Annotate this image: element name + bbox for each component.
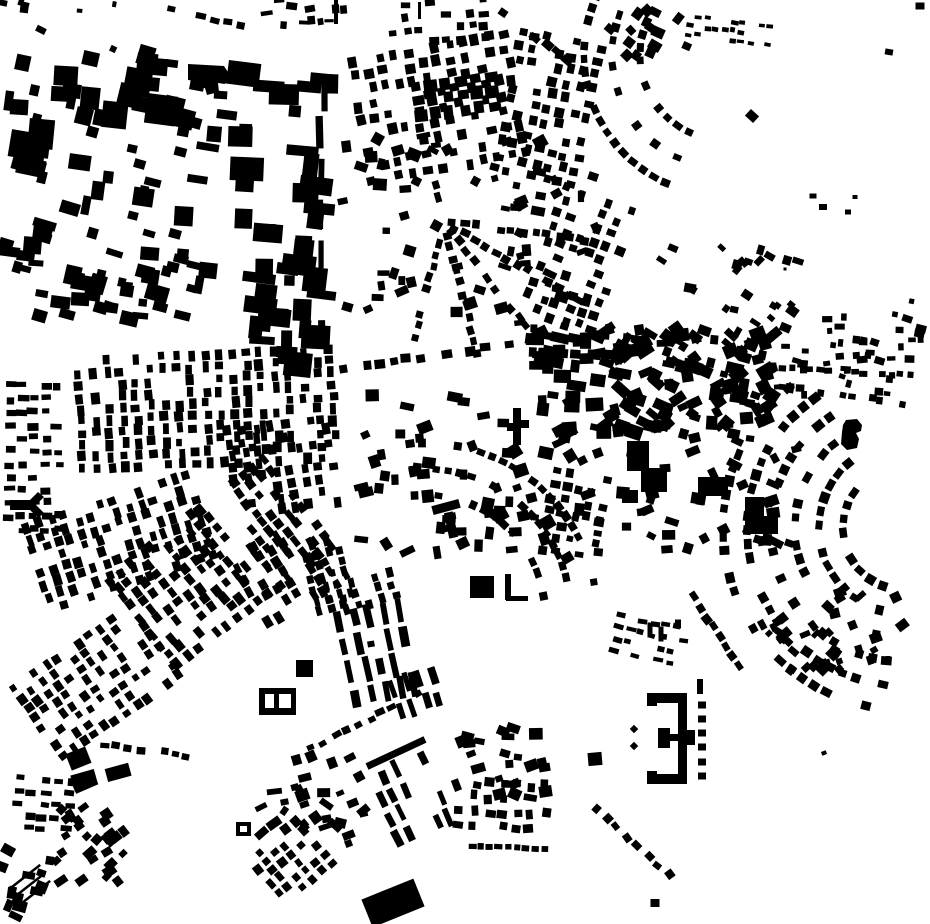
building [637,164,648,175]
building [121,416,128,427]
building [102,171,114,184]
building [355,114,366,126]
building [143,649,154,660]
building [415,433,424,443]
building [762,534,772,546]
building [104,428,113,440]
building [293,238,315,259]
building [80,86,101,110]
building [226,439,234,450]
building [637,57,644,65]
building [567,521,578,532]
building [230,409,239,419]
building [547,88,558,99]
building [694,32,701,37]
building [163,542,174,554]
building [103,559,112,570]
building [380,603,390,625]
building [101,523,111,533]
building [460,52,469,64]
building [729,586,739,597]
building [287,478,297,489]
building [304,5,315,13]
building [216,550,225,560]
building [44,498,52,505]
building [521,845,529,852]
building [466,325,475,336]
building [851,369,859,375]
building [185,365,192,374]
building [277,503,287,515]
building [182,649,195,662]
building [120,452,127,460]
building [385,567,394,578]
building [823,411,835,423]
building [664,868,676,880]
building [686,22,694,28]
building [469,255,480,267]
building [769,453,780,464]
building [196,141,220,152]
building [326,756,338,769]
building [18,395,30,402]
building [236,21,245,29]
building [159,363,165,373]
building [286,2,298,11]
building [50,295,71,310]
building [16,409,28,416]
building [367,715,376,723]
building [134,487,144,500]
building [82,630,93,640]
building [684,127,694,137]
building [112,1,117,7]
building [370,131,385,146]
building [395,803,407,820]
building [698,759,706,766]
building [592,0,603,1]
building [587,752,602,766]
building [757,619,768,631]
building [105,763,132,782]
building [92,427,101,436]
building [52,573,63,586]
building [268,444,277,455]
building [105,367,112,379]
building [644,851,655,862]
building [400,782,412,799]
building [226,60,261,88]
building [61,558,72,570]
building [170,614,181,626]
building [817,448,830,461]
building [42,449,51,455]
building [135,450,143,460]
building [343,752,356,763]
building [285,849,296,860]
building [470,85,484,100]
building [280,419,290,429]
building [506,546,518,554]
building [260,409,268,419]
building [581,113,590,124]
building [327,366,334,377]
building [724,572,735,584]
building [403,244,417,258]
building [816,506,825,517]
building [6,381,16,387]
ring-hut [236,822,251,836]
building [652,861,662,871]
building [61,831,71,841]
building [509,527,522,536]
building [179,458,186,468]
building [313,403,321,413]
building [60,689,70,699]
building [460,105,471,117]
building [326,381,335,390]
building [95,624,106,635]
building [540,779,548,789]
building [119,284,134,298]
building [76,517,84,527]
building [681,41,692,51]
building [274,467,281,477]
building [477,843,483,850]
building [36,723,46,733]
building [393,157,402,167]
building [470,235,482,246]
building [162,603,174,616]
building [834,324,844,330]
building [739,398,755,407]
building [830,342,836,348]
building [653,657,664,663]
building [35,289,48,298]
building [181,753,190,761]
building [324,439,332,447]
building [120,403,127,413]
building [243,461,253,473]
building [243,370,251,380]
building [96,694,105,703]
building [876,396,883,404]
building [576,455,588,466]
building [92,451,98,461]
building [562,196,570,206]
building [6,446,16,453]
building [429,37,439,45]
building [410,81,421,91]
building [35,568,45,579]
building [287,396,294,404]
building [55,724,66,735]
building [367,684,377,702]
thin-bar-north [418,2,421,19]
building [16,693,29,707]
building [50,739,63,752]
building [433,692,443,707]
building [344,660,354,683]
building [97,650,108,662]
building [513,40,524,51]
building [132,525,142,536]
building [887,356,896,361]
building [824,368,832,374]
building [667,243,679,253]
building [271,371,278,381]
building [705,26,712,31]
building [309,441,317,450]
building [109,668,120,679]
building [306,575,314,584]
building [469,73,481,84]
building [337,197,348,205]
building [561,494,570,503]
building [533,567,543,579]
building [132,354,139,365]
building [649,138,661,150]
building [180,470,190,480]
building [532,303,542,314]
building [796,384,805,392]
building [291,754,303,766]
building [130,404,140,412]
building [797,400,810,413]
building [286,405,294,415]
building [593,548,603,557]
building [18,486,26,493]
building [347,56,357,68]
building [29,668,39,678]
building [464,346,476,357]
building [759,23,765,27]
building [387,122,399,135]
building [41,802,50,808]
building [456,35,466,45]
building [675,620,681,629]
building [144,282,170,304]
building [244,604,255,615]
building [454,75,468,88]
building [792,513,800,521]
building [623,333,631,340]
building [35,826,45,832]
building [451,778,462,792]
building [394,170,404,180]
building [219,411,225,420]
building [502,733,515,740]
building [845,210,851,215]
building [374,483,384,494]
building [254,826,269,841]
building [38,580,48,593]
building [171,523,182,536]
building [389,30,397,36]
building [729,38,736,44]
building [253,432,260,444]
building [284,465,294,476]
building [229,375,238,384]
building [363,68,375,80]
building [389,50,397,61]
building [478,11,489,18]
building [131,673,139,682]
building [80,195,92,215]
building [96,546,107,558]
building [453,442,462,451]
building [174,146,188,158]
building [411,334,419,342]
building [479,154,488,165]
building [140,666,151,676]
building [206,435,213,445]
building [505,56,516,68]
building [553,63,563,75]
building [474,539,483,552]
building [315,116,323,149]
building [341,140,352,153]
building [243,408,253,418]
big-south-rect [361,879,424,924]
building [787,596,800,609]
building [396,703,406,720]
building [711,26,718,32]
building [280,798,289,806]
building [353,632,365,656]
building [222,425,232,436]
building [278,494,285,504]
building [616,611,626,618]
building [565,212,577,222]
building [257,372,264,379]
building [740,289,753,302]
building [529,32,540,41]
building [90,833,103,846]
building [265,509,278,522]
building [539,119,548,129]
building [168,228,182,240]
building [327,604,336,614]
building [106,415,112,426]
building [245,431,253,440]
building [252,863,265,876]
building [864,573,877,586]
building [877,680,889,690]
building [179,449,185,459]
building [822,316,832,322]
church-cross [507,408,529,445]
building [121,461,130,472]
building [587,171,599,182]
building [195,12,206,20]
building [88,563,97,574]
building [840,366,851,372]
building [341,301,353,312]
building [301,865,310,874]
building [550,187,563,199]
building [789,364,795,371]
building [395,429,405,438]
building [70,654,80,664]
building [600,240,611,252]
building [439,77,451,90]
building [220,532,230,542]
building [460,220,470,227]
building [158,352,165,360]
building [422,692,433,709]
building [70,769,97,790]
building [433,546,442,560]
building [5,422,16,428]
building [765,605,775,616]
building [560,91,570,102]
building [766,24,773,28]
building [554,118,564,129]
building [551,533,560,542]
building [425,0,436,6]
building [637,43,645,52]
building [556,522,567,532]
building [253,445,261,456]
building [421,284,432,294]
building [433,814,444,829]
building [221,577,231,587]
building [630,653,639,660]
building [144,378,151,388]
building [731,20,739,26]
building [270,346,277,356]
building [653,103,664,114]
building [537,484,547,494]
building [187,387,193,397]
building [845,552,858,566]
building [586,280,597,289]
building [317,200,323,229]
building [540,296,549,305]
building [38,676,48,687]
building [444,467,452,474]
building [144,390,153,401]
building [762,444,774,456]
building [517,156,528,167]
building [573,38,582,46]
building [528,557,538,567]
building [285,382,292,394]
building [810,194,817,199]
building [590,578,598,586]
building [241,348,250,356]
building [518,228,528,238]
building [144,93,178,126]
building [85,512,95,523]
building [441,11,451,17]
building [156,515,166,528]
building [782,255,793,266]
building [516,56,525,65]
building [916,3,925,10]
nw-factory-blob [188,64,231,95]
building [757,591,769,604]
building [333,497,341,508]
building [215,362,223,370]
building [636,628,644,635]
building [214,564,226,576]
building [77,450,86,461]
building [314,395,323,403]
building [406,276,417,288]
building [423,79,438,93]
